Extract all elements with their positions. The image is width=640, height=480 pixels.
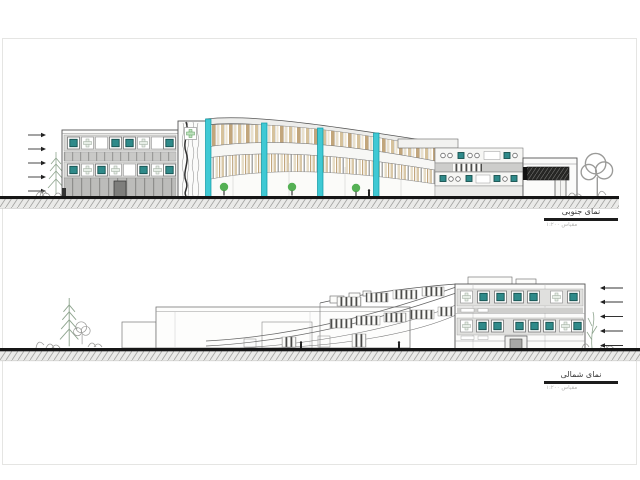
label-underline — [544, 218, 618, 221]
north-right-block — [455, 277, 585, 350]
south-annex — [523, 158, 577, 197]
level-arrow-icon — [600, 286, 623, 291]
cyan-column — [206, 119, 212, 197]
south-level-arrows — [28, 133, 46, 194]
north-elevation-drawing — [0, 277, 640, 361]
shrub-icon — [46, 344, 60, 348]
level-arrow-icon — [28, 147, 46, 152]
person-figure — [398, 341, 400, 348]
ground-line — [0, 348, 640, 351]
level-arrow-icon — [600, 329, 623, 334]
level-arrow-icon — [600, 314, 623, 319]
ground-hatch — [0, 199, 619, 208]
south-central-section — [206, 118, 436, 197]
north-left-landscape — [36, 298, 102, 348]
level-arrow-icon — [28, 133, 46, 138]
north-level-arrows — [600, 286, 623, 348]
entrance-door — [114, 181, 126, 197]
north-right-landscape — [582, 312, 614, 349]
north-elevation-title: نمای شمالی — [544, 370, 618, 380]
cyan-column — [374, 133, 380, 197]
south-elevation-label-block: نمای جنوبی مقیاس ۱:۲۰۰ — [544, 207, 618, 228]
window-band — [461, 320, 584, 332]
south-elevation-drawing — [0, 118, 619, 209]
cyan-column — [262, 123, 268, 197]
south-wavy-wall — [178, 121, 206, 197]
deciduous-tree-icon — [581, 153, 612, 196]
shrub-icon — [36, 192, 50, 196]
shrub-icon — [88, 343, 102, 347]
window-band — [68, 164, 176, 176]
conifer-tree-icon — [60, 298, 78, 346]
north-elevation-label-block: نمای شمالی مقیاس ۱:۲۰۰ — [544, 370, 618, 391]
ground-line — [0, 196, 619, 199]
level-arrow-icon — [600, 300, 623, 305]
south-scale-note: مقیاس ۱:۲۰۰ — [544, 222, 618, 228]
person-figure — [300, 341, 302, 348]
level-arrow-icon — [28, 175, 46, 180]
louver-cluster — [452, 164, 482, 172]
window-band — [68, 137, 176, 149]
person-figure — [368, 189, 370, 196]
south-elevation-title: نمای جنوبی — [544, 207, 618, 217]
screen-wall — [527, 167, 569, 180]
ground-hatch — [0, 351, 640, 360]
level-arrow-icon — [28, 161, 46, 166]
deciduous-tree-icon — [74, 322, 91, 345]
label-underline — [544, 381, 618, 384]
south-left-block — [62, 130, 178, 197]
cross-window — [185, 128, 197, 140]
window-band — [461, 291, 580, 303]
elevation-drawing-canvas — [0, 0, 640, 480]
drawing-sheet: نمای جنوبی مقیاس ۱:۲۰۰ نمای شمالی مقیاس … — [0, 0, 640, 480]
north-low-wing — [122, 307, 410, 348]
north-scale-note: مقیاس ۱:۲۰۰ — [544, 385, 618, 391]
level-arrow-icon — [600, 343, 623, 348]
cyan-column — [318, 128, 324, 197]
